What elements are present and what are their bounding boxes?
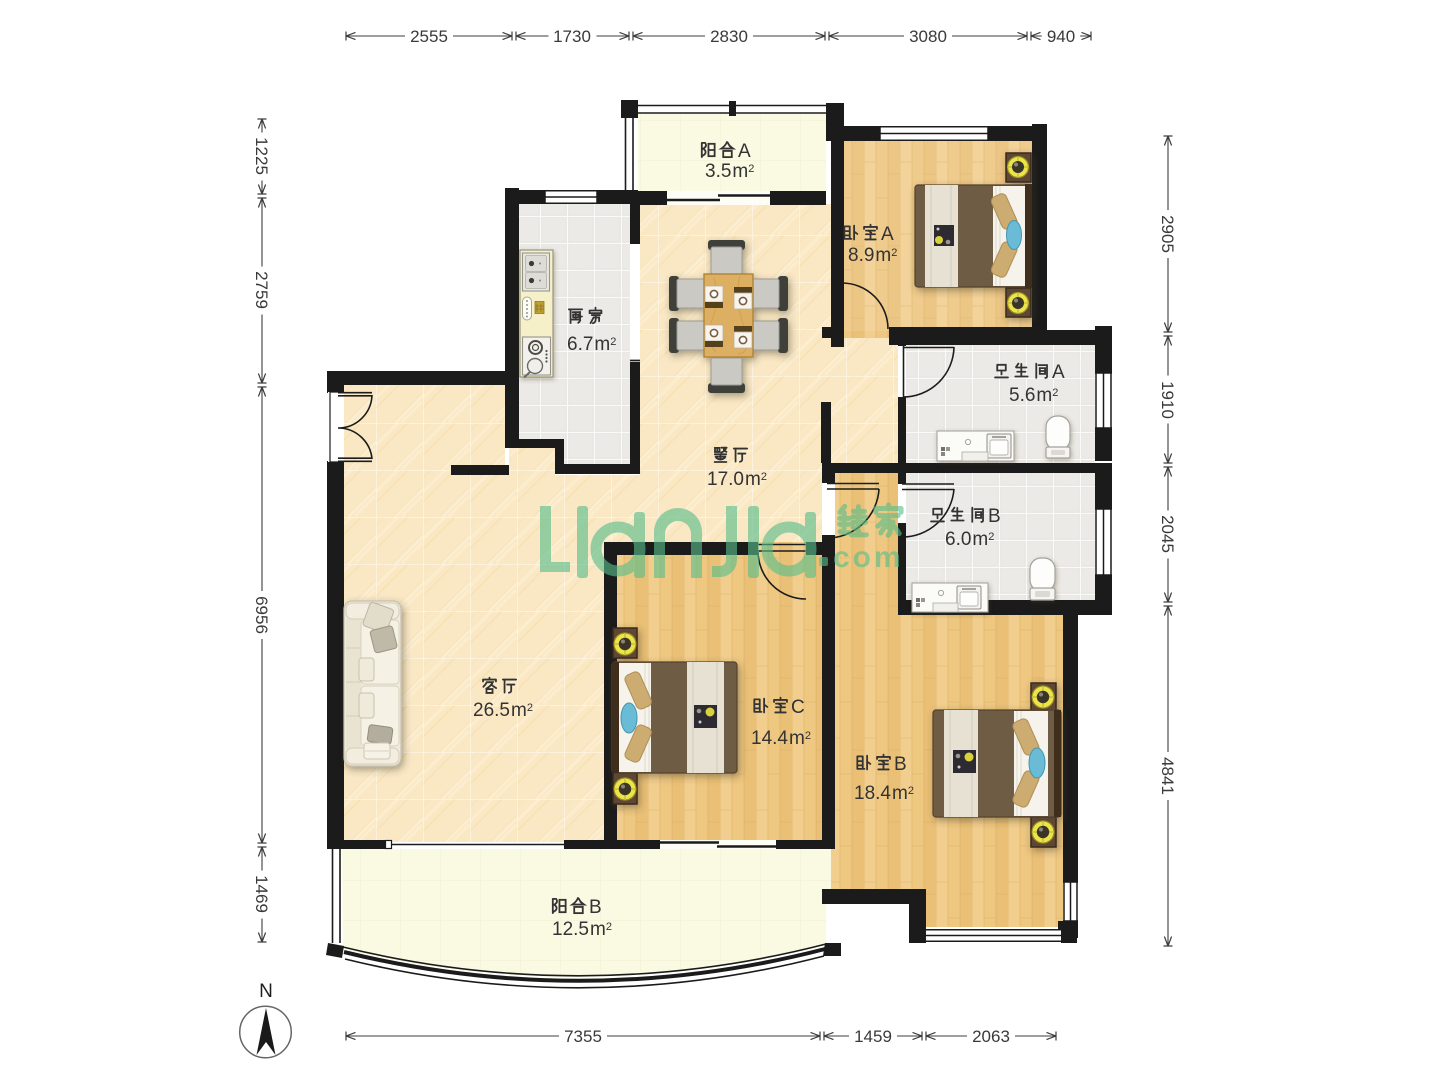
svg-text:A: A [881,224,894,245]
svg-text:4841: 4841 [1158,757,1177,795]
svg-text:1225: 1225 [252,137,271,175]
svg-text:2759: 2759 [252,271,271,309]
svg-text:2830: 2830 [710,27,748,46]
svg-text:3.5m2: 3.5m2 [705,161,754,182]
svg-text:8.9m2: 8.9m2 [848,245,897,266]
svg-text:6.7m2: 6.7m2 [567,334,616,355]
svg-text:2045: 2045 [1158,515,1177,553]
svg-text:14.4m2: 14.4m2 [751,728,811,749]
svg-text:A: A [1052,362,1065,383]
svg-text:7355: 7355 [564,1027,602,1046]
svg-text:26.5m2: 26.5m2 [473,700,533,721]
svg-text:C: C [791,697,805,718]
svg-text:com: com [833,541,904,574]
svg-text:B: B [988,506,1001,527]
svg-text:12.5m2: 12.5m2 [552,919,612,940]
svg-text:17.0m2: 17.0m2 [707,469,767,490]
svg-text:1910: 1910 [1158,381,1177,419]
svg-text:2063: 2063 [972,1027,1010,1046]
svg-text:N: N [259,981,273,1002]
svg-text:B: B [894,754,907,775]
svg-text:6956: 6956 [252,596,271,634]
svg-text:1459: 1459 [854,1027,892,1046]
svg-text:1730: 1730 [553,27,591,46]
svg-text:5.6m2: 5.6m2 [1009,385,1058,406]
svg-text:6.0m2: 6.0m2 [945,529,994,550]
svg-text:2555: 2555 [410,27,448,46]
svg-text:3080: 3080 [909,27,947,46]
svg-text:18.4m2: 18.4m2 [854,783,914,804]
svg-text:B: B [589,897,602,918]
svg-text:940: 940 [1047,27,1075,46]
svg-text:2905: 2905 [1158,215,1177,253]
svg-text:A: A [738,141,751,162]
svg-text:1469: 1469 [252,875,271,913]
